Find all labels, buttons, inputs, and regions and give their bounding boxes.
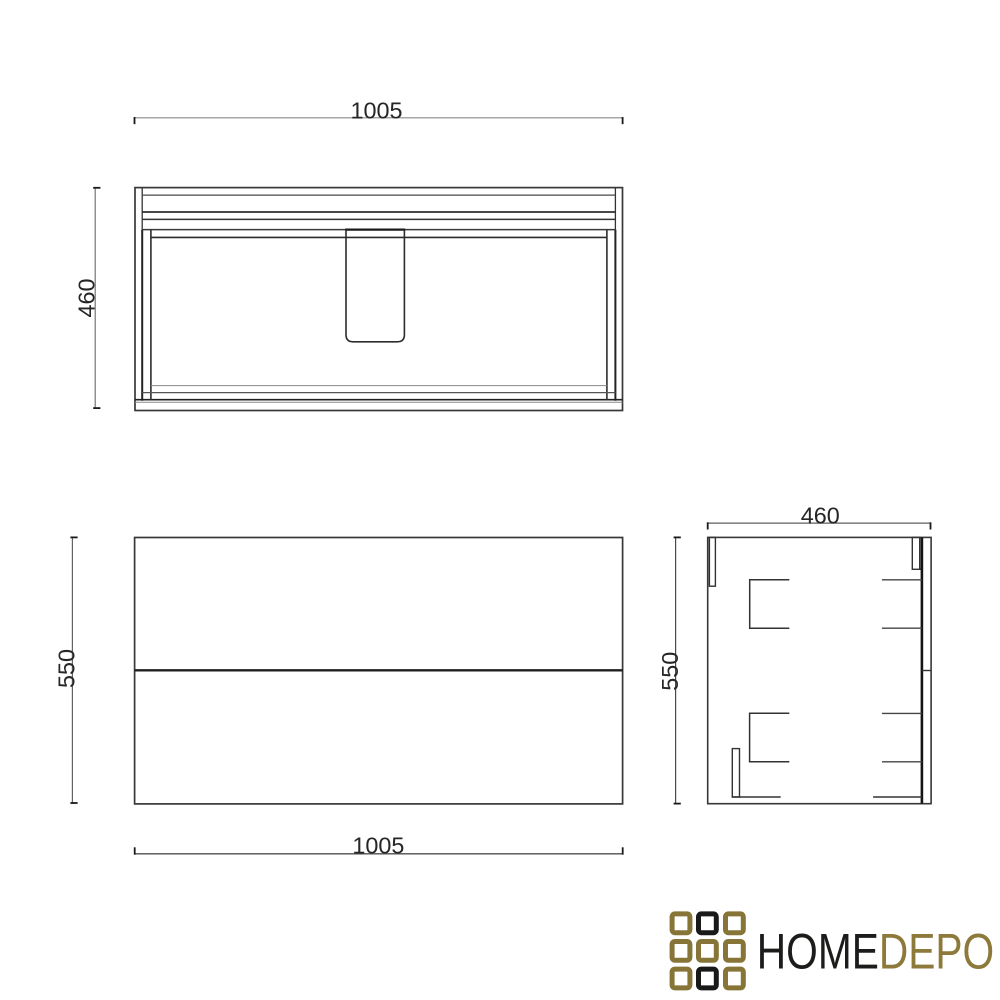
- svg-text:550: 550: [53, 649, 79, 688]
- svg-text:550: 550: [657, 652, 683, 691]
- svg-text:460: 460: [74, 278, 100, 317]
- svg-text:1005: 1005: [352, 833, 404, 859]
- svg-text:460: 460: [801, 502, 840, 528]
- svg-text:HOMEDEPO: HOMEDEPO: [757, 924, 994, 980]
- svg-text:1005: 1005: [350, 98, 402, 124]
